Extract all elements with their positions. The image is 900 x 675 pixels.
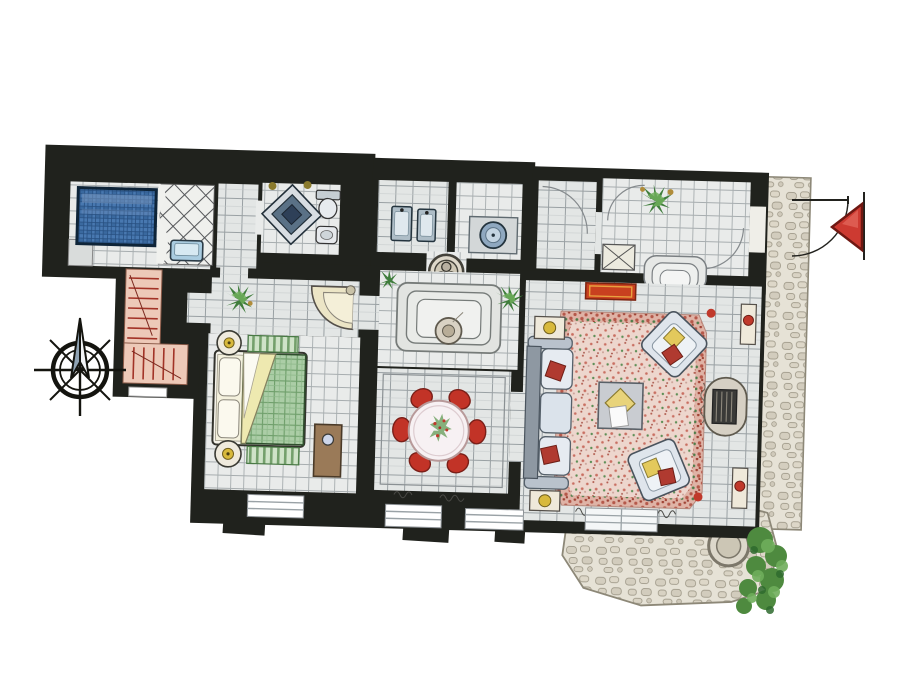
door-opening	[353, 295, 382, 330]
slit-window	[129, 387, 167, 397]
nightstand	[215, 440, 242, 467]
coffee-table	[598, 382, 643, 429]
french-door	[585, 508, 658, 532]
closet-with-cross	[602, 244, 635, 270]
wc-room	[255, 180, 341, 255]
shower-room	[156, 184, 214, 266]
window	[465, 508, 524, 530]
pillow	[219, 358, 241, 397]
seat-cushion	[540, 393, 572, 434]
bidet	[316, 226, 337, 244]
door-opening	[255, 201, 264, 235]
floor-plan-page	[0, 0, 900, 675]
bedroom	[204, 330, 360, 493]
courtyard-steps	[376, 270, 525, 370]
floor-plan	[33, 145, 811, 610]
side-table	[530, 490, 561, 511]
sofa	[523, 336, 573, 489]
double-bed	[212, 350, 307, 447]
bedside-rug	[247, 446, 299, 464]
wall-console	[732, 468, 748, 508]
window	[247, 494, 304, 518]
dining-room	[374, 368, 511, 494]
window	[385, 504, 442, 528]
compass-rose	[34, 318, 126, 416]
red-pillow	[658, 468, 676, 486]
side-table	[534, 316, 565, 339]
wardrobe	[313, 424, 341, 477]
bedroom-hallway	[210, 277, 381, 338]
door-opening	[187, 293, 214, 324]
pillow	[217, 400, 239, 439]
north-needle	[71, 318, 89, 400]
bedside-rug	[248, 335, 298, 352]
front-door-opening	[749, 206, 766, 252]
wall-console	[740, 304, 756, 344]
floor-plan-canvas	[0, 0, 900, 675]
nightstand	[217, 330, 242, 355]
sink	[417, 209, 436, 241]
red-pillow	[541, 445, 560, 464]
sink	[391, 206, 412, 241]
